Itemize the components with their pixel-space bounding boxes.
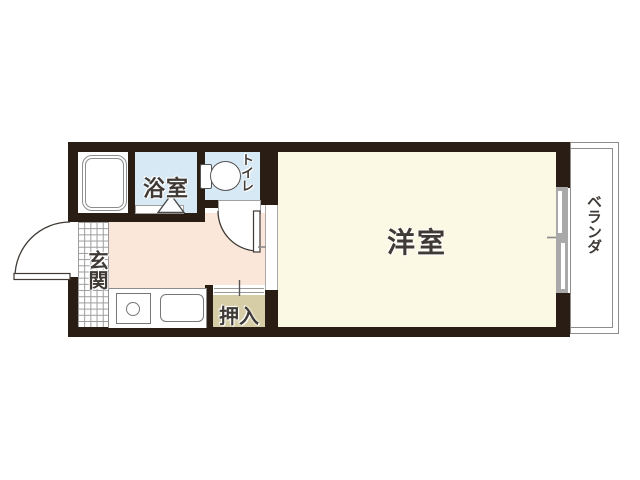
toilet-label: トイレ <box>237 153 256 203</box>
veranda-label: ベランダ <box>583 194 604 290</box>
bathroom-label: 浴室 <box>135 171 197 203</box>
floor-plan: 浴室 トイレ 玄関 押入 洋室 ベランダ <box>0 0 640 480</box>
toilet-door-leaf <box>254 211 261 252</box>
closet-label: 押入 <box>213 300 265 329</box>
entrance-door-swing-fill <box>15 222 70 277</box>
living-room-label: 洋室 <box>278 221 556 261</box>
entrance-label: 玄関 <box>82 250 111 316</box>
entrance-door-leaf <box>14 274 70 280</box>
